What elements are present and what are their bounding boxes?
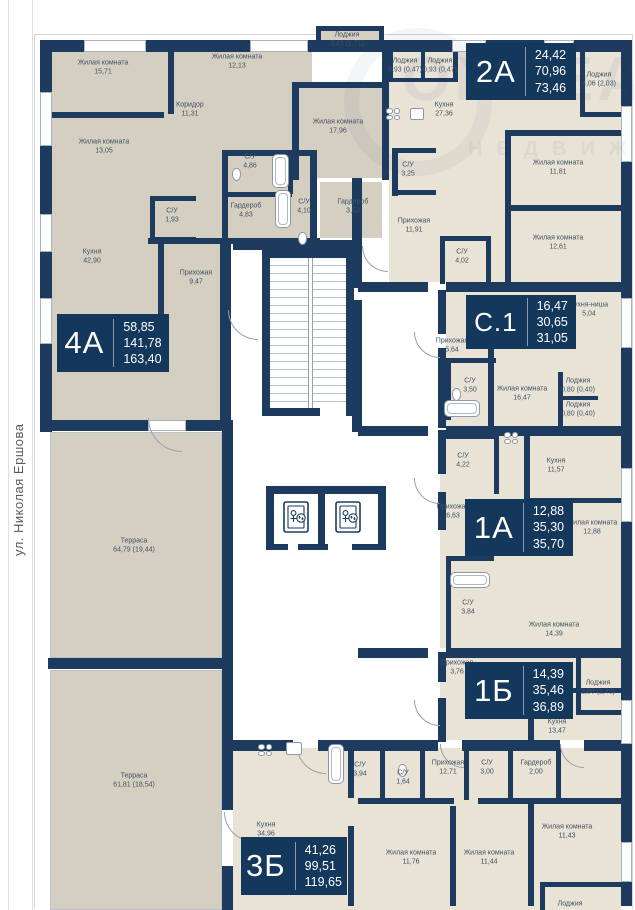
room-label: Лоджия3,43 (1,71) bbox=[330, 31, 364, 50]
room-label: Жилая комната11,76 bbox=[386, 849, 437, 868]
wall bbox=[298, 544, 328, 550]
sink-icon bbox=[286, 742, 302, 755]
wall bbox=[266, 486, 386, 494]
wall bbox=[446, 556, 494, 561]
bathtub-icon bbox=[328, 744, 344, 784]
room-label: С/У3,00 bbox=[480, 759, 494, 778]
wall bbox=[524, 430, 530, 504]
wall bbox=[440, 236, 490, 241]
room-label: С/У1,93 bbox=[165, 207, 179, 226]
room-label: Прихожая11,91 bbox=[398, 217, 430, 236]
apartment-id: 3Б bbox=[246, 848, 286, 884]
room-label: С/У3,84 bbox=[461, 599, 475, 618]
wall bbox=[392, 190, 436, 195]
room-label: Гардероб2,00 bbox=[521, 759, 552, 778]
wall bbox=[446, 648, 621, 658]
wall bbox=[450, 806, 456, 906]
elevator-icon bbox=[283, 501, 309, 533]
room-label: Лоджия2,86 (1,43) bbox=[581, 679, 615, 698]
wall bbox=[348, 826, 354, 906]
wall bbox=[556, 744, 561, 800]
wall bbox=[352, 544, 386, 550]
room-label: Жилая комната17,96 bbox=[313, 118, 364, 137]
room-label: Жилая комната12,61 bbox=[533, 234, 584, 253]
room-label: Терраса61,81 (18,54) bbox=[113, 772, 155, 791]
room-label: Кухня11,57 bbox=[547, 457, 566, 476]
wall bbox=[440, 236, 445, 284]
wall bbox=[528, 800, 534, 906]
room-label: Жилая комната11,43 bbox=[542, 823, 593, 842]
apartment-id: 2А bbox=[476, 54, 516, 90]
room-label: С/У4,10 bbox=[297, 198, 311, 217]
wall bbox=[222, 866, 233, 910]
wall bbox=[310, 150, 317, 240]
wall bbox=[388, 78, 458, 82]
apartment-badge[interactable]: 4А58,85141,78163,40 bbox=[57, 314, 169, 372]
wall bbox=[262, 408, 320, 416]
wall bbox=[292, 82, 299, 180]
wall bbox=[438, 348, 446, 428]
room-label: Лоджия0,80 (0,40) bbox=[561, 401, 595, 420]
room-label: Гардероб3,53 bbox=[338, 198, 369, 217]
frame-line bbox=[32, 0, 33, 910]
wall bbox=[222, 154, 228, 240]
room-label: Кухня13,47 bbox=[548, 718, 567, 737]
wall bbox=[168, 52, 174, 114]
wall bbox=[266, 486, 274, 550]
wall bbox=[358, 282, 428, 292]
wall bbox=[268, 250, 348, 258]
apartment-areas: 14,3935,4636,89 bbox=[523, 666, 564, 715]
wall bbox=[222, 420, 233, 810]
wall bbox=[558, 396, 598, 400]
wall bbox=[150, 237, 196, 242]
wall bbox=[438, 430, 446, 474]
wall bbox=[580, 112, 621, 117]
wall bbox=[358, 426, 428, 436]
wall bbox=[505, 209, 511, 286]
wall bbox=[488, 342, 494, 426]
window-opening bbox=[621, 468, 632, 522]
room-label: Кухня42,90 bbox=[83, 248, 102, 267]
street-label: ул. Николая Ершова bbox=[5, 360, 32, 620]
wall bbox=[540, 882, 621, 887]
room-label: С/У4,86 bbox=[243, 153, 257, 172]
wall bbox=[576, 710, 621, 715]
toilet-icon bbox=[452, 388, 461, 401]
window-opening bbox=[40, 214, 52, 252]
toilet-icon bbox=[298, 232, 307, 245]
apartment-areas: 24,4270,9673,46 bbox=[525, 47, 566, 96]
window-opening bbox=[84, 40, 146, 52]
window-opening bbox=[621, 842, 632, 882]
wall bbox=[150, 196, 155, 242]
room-label: Жилая комната12,88 bbox=[567, 519, 618, 538]
apartment-badge[interactable]: 3Б41,2699,51119,65 bbox=[241, 837, 347, 895]
bathtub-icon bbox=[444, 400, 480, 417]
room-label: Гардероб4,83 bbox=[231, 202, 262, 221]
apartment-areas: 58,85141,78163,40 bbox=[113, 319, 161, 368]
window-opening bbox=[621, 298, 632, 348]
room-label: С/У3,25 bbox=[401, 161, 415, 180]
window-opening bbox=[40, 298, 52, 344]
wall bbox=[584, 740, 622, 751]
room-label: Жилая комната13,05 bbox=[79, 138, 130, 157]
wall bbox=[40, 420, 232, 431]
room-label: С/У3,50 bbox=[463, 377, 477, 396]
room-label: С/У4,02 bbox=[455, 248, 469, 267]
wall bbox=[420, 744, 425, 800]
stove-icon bbox=[258, 744, 272, 756]
room-label: Жилая комната12,13 bbox=[212, 53, 263, 72]
apartment-id: 4А bbox=[64, 325, 104, 361]
apartment-areas: 16,4730,6531,05 bbox=[527, 298, 568, 347]
room-label: Жилая комната14,39 bbox=[529, 621, 580, 640]
room-label: Прихожая5,64 bbox=[436, 337, 468, 356]
wall bbox=[464, 744, 469, 800]
room-label: Лоджия0,80 (0,40) bbox=[561, 377, 595, 396]
room-label: Жилая комната11,81 bbox=[533, 159, 584, 178]
room-label: Кухня27,36 bbox=[435, 101, 454, 120]
floor-plan: ул. Николая Ершова ONREAL НЕДВИЖИМОСТЬ Ж… bbox=[0, 0, 635, 910]
bathtub-icon bbox=[275, 190, 291, 228]
wall bbox=[505, 205, 621, 211]
toilet-icon bbox=[232, 168, 241, 181]
apartment-badge[interactable]: С.116,4730,6531,05 bbox=[466, 295, 576, 349]
room-label: Прихожая12,71 bbox=[432, 759, 464, 778]
wall bbox=[48, 658, 224, 669]
wall bbox=[378, 486, 386, 550]
room-label: Лоджия bbox=[558, 899, 583, 908]
apartment-badge[interactable]: 1Б14,3935,4636,89 bbox=[465, 662, 573, 719]
wall bbox=[318, 486, 325, 550]
wall bbox=[446, 282, 621, 292]
apartment-areas: 12,8835,3035,70 bbox=[523, 503, 564, 552]
window-opening bbox=[250, 40, 308, 52]
stove-icon bbox=[504, 432, 518, 444]
wall bbox=[358, 648, 428, 658]
wall bbox=[478, 798, 621, 804]
apartment-id: С.1 bbox=[474, 307, 517, 338]
wall bbox=[292, 82, 386, 88]
apartment-badge[interactable]: 2А24,4270,9673,46 bbox=[466, 43, 576, 100]
room-label: Лоджия0,93 (0,47) bbox=[388, 57, 422, 76]
apartment-areas: 41,2699,51119,65 bbox=[295, 842, 342, 891]
sink-icon bbox=[410, 108, 424, 120]
window-opening bbox=[621, 106, 632, 162]
wall bbox=[505, 130, 621, 136]
room-label: С/У3,94 bbox=[353, 761, 367, 780]
wall bbox=[494, 434, 499, 494]
window-opening bbox=[40, 92, 52, 146]
wall bbox=[540, 882, 545, 910]
apartment-badge[interactable]: 1А12,8835,3035,70 bbox=[465, 499, 573, 556]
wall bbox=[150, 196, 196, 201]
elevator-icon bbox=[335, 501, 361, 533]
wall bbox=[505, 134, 511, 210]
wall bbox=[392, 148, 398, 196]
stove-icon bbox=[386, 108, 400, 120]
apartment-id: 1Б bbox=[474, 673, 514, 709]
staircase bbox=[270, 258, 346, 408]
wall bbox=[222, 150, 314, 156]
wall bbox=[392, 148, 436, 153]
room-label: С/У1,64 bbox=[396, 769, 410, 788]
room-label: Коридор11,31 bbox=[176, 101, 204, 120]
window-opening bbox=[621, 700, 632, 744]
room-label: Жилая комната15,71 bbox=[78, 59, 129, 78]
wall bbox=[440, 434, 498, 439]
wall bbox=[220, 244, 231, 422]
room-label: Лоджия0,93 (0,47) bbox=[423, 57, 457, 76]
wall bbox=[446, 556, 451, 648]
wall bbox=[486, 236, 491, 284]
wall bbox=[358, 798, 454, 804]
room-label: Жилая комната16,47 bbox=[497, 385, 548, 404]
room-label: Прихожая9,47 bbox=[180, 269, 212, 288]
room-label: Лоджия4,06 (2,03) bbox=[582, 71, 616, 90]
bathtub-icon bbox=[450, 572, 490, 588]
room-label: С/У4,22 bbox=[456, 452, 470, 471]
wall bbox=[346, 250, 354, 416]
wall bbox=[262, 250, 270, 416]
room-label: Жилая комната11,44 bbox=[464, 849, 515, 868]
bathtub-icon bbox=[272, 154, 289, 188]
wall bbox=[380, 744, 385, 800]
apartment-id: 1А bbox=[474, 510, 514, 546]
room-label: Терраса64,79 (19,44) bbox=[113, 537, 155, 556]
wall bbox=[508, 744, 513, 800]
wall bbox=[266, 544, 288, 550]
wall bbox=[438, 290, 446, 334]
wall bbox=[52, 112, 164, 118]
